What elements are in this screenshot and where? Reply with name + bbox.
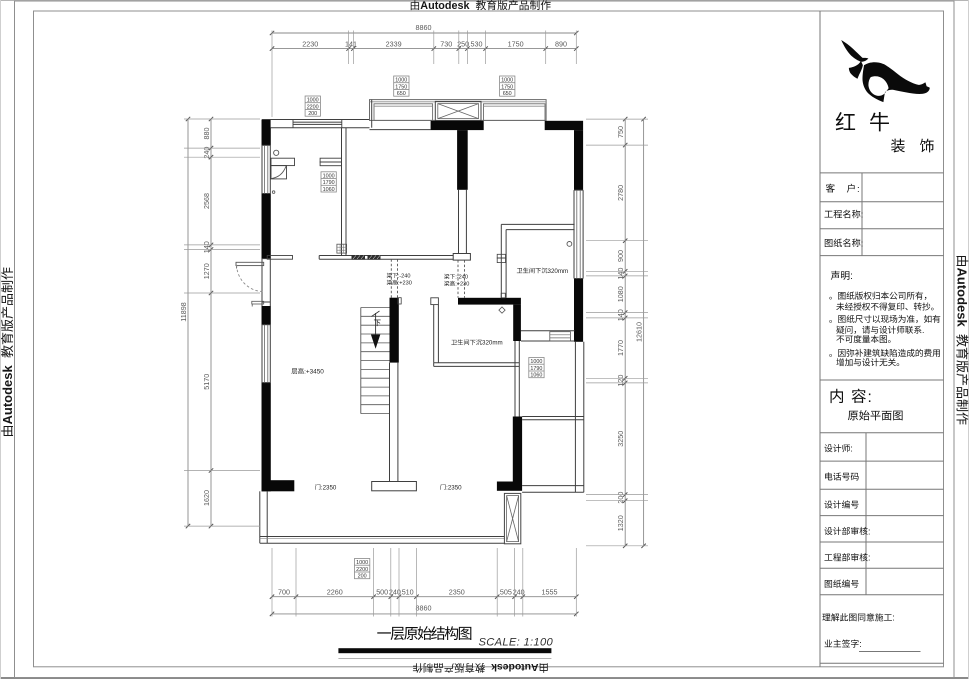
svg-text:120: 120	[616, 375, 625, 387]
svg-text:1270: 1270	[202, 263, 211, 279]
svg-text::: :	[861, 238, 864, 248]
svg-text:1060: 1060	[530, 373, 542, 379]
svg-text:Autodesk: Autodesk	[491, 661, 539, 672]
svg-text:1790: 1790	[530, 366, 542, 372]
svg-text:1555: 1555	[542, 588, 558, 597]
svg-text::: :	[868, 526, 870, 536]
svg-text:8860: 8860	[416, 604, 432, 613]
svg-text:1750: 1750	[395, 84, 407, 90]
svg-text::: :	[861, 210, 864, 220]
svg-text:650: 650	[397, 91, 406, 97]
svg-text::+230: :+230	[455, 282, 469, 288]
svg-text:200: 200	[308, 111, 317, 117]
svg-text:Autodesk: Autodesk	[420, 0, 470, 12]
svg-text:200: 200	[358, 574, 367, 580]
svg-text:650: 650	[503, 91, 512, 97]
svg-text:8860: 8860	[416, 23, 432, 32]
svg-text:1620: 1620	[202, 490, 211, 506]
svg-text::2350: :2350	[321, 484, 337, 491]
svg-text:5170: 5170	[202, 374, 211, 390]
svg-text:890: 890	[555, 39, 567, 48]
svg-text::: :	[868, 389, 872, 406]
svg-text:141: 141	[345, 39, 357, 48]
svg-text::+230: :+230	[398, 281, 412, 287]
svg-text:530: 530	[471, 39, 483, 48]
svg-text::: :	[892, 613, 894, 623]
svg-text:880: 880	[202, 128, 211, 140]
svg-text:1000: 1000	[307, 98, 319, 104]
svg-text:140: 140	[616, 268, 625, 280]
svg-text::2350: :2350	[446, 484, 462, 491]
svg-text:900: 900	[616, 250, 625, 262]
svg-text:1000: 1000	[530, 359, 542, 365]
svg-text:2339: 2339	[386, 39, 402, 48]
svg-text:2200: 2200	[307, 104, 319, 110]
svg-text:140: 140	[616, 309, 625, 321]
svg-text:1320: 1320	[616, 515, 625, 531]
svg-text:200: 200	[616, 492, 625, 504]
svg-text:730: 730	[440, 39, 452, 48]
svg-text:2780: 2780	[616, 185, 625, 201]
svg-text:2260: 2260	[327, 588, 343, 597]
svg-text::+3450: :+3450	[304, 369, 324, 376]
svg-text:Autodesk: Autodesk	[955, 268, 969, 328]
svg-text:2568: 2568	[202, 193, 211, 209]
svg-text:140: 140	[202, 241, 211, 253]
svg-text:12610: 12610	[634, 322, 643, 342]
svg-text:510: 510	[402, 588, 414, 597]
svg-text:1000: 1000	[501, 78, 513, 84]
svg-text:.: .	[922, 325, 924, 335]
svg-text:1080: 1080	[616, 286, 625, 302]
svg-text::-240: :-240	[398, 274, 411, 280]
svg-text::: :	[868, 553, 870, 563]
svg-text:1000: 1000	[356, 560, 368, 566]
svg-text:3250: 3250	[616, 431, 625, 447]
svg-text:700: 700	[278, 588, 290, 597]
svg-text:1000: 1000	[323, 173, 335, 179]
svg-text:500: 500	[376, 588, 388, 597]
svg-text:1060: 1060	[323, 187, 335, 193]
svg-text:Autodesk: Autodesk	[0, 365, 15, 425]
svg-text:11898: 11898	[179, 302, 188, 321]
svg-text:505: 505	[500, 588, 512, 597]
svg-text:2230: 2230	[302, 39, 318, 48]
svg-text::: :	[850, 444, 852, 454]
svg-text:320mm: 320mm	[548, 268, 569, 275]
svg-text:2350: 2350	[449, 588, 465, 597]
svg-text::: :	[859, 639, 861, 649]
svg-text:SCALE: 1:100: SCALE: 1:100	[479, 637, 554, 649]
svg-text:750: 750	[616, 126, 625, 138]
svg-text:320mm: 320mm	[482, 340, 503, 347]
svg-text::-240: :-240	[455, 275, 468, 281]
svg-text:1750: 1750	[501, 84, 513, 90]
svg-text:1770: 1770	[616, 340, 625, 356]
svg-text:1750: 1750	[508, 39, 524, 48]
svg-text:1790: 1790	[323, 180, 335, 186]
svg-text:2200: 2200	[356, 567, 368, 573]
svg-text::: :	[850, 271, 853, 282]
svg-text::: :	[857, 184, 860, 195]
svg-text:1000: 1000	[395, 78, 407, 84]
